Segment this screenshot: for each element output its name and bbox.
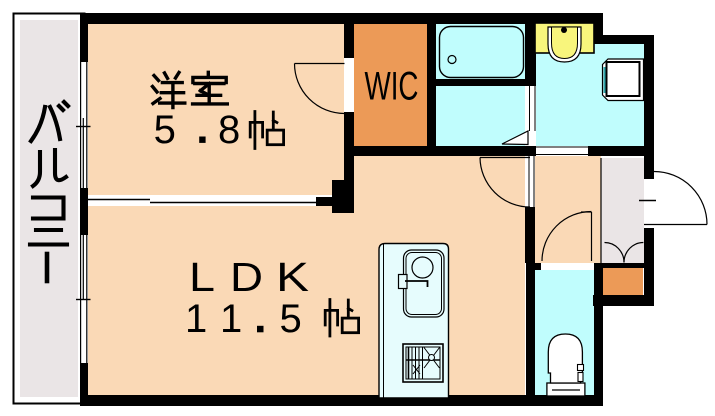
svg-text:WIC: WIC (365, 65, 419, 109)
svg-text:L: L (189, 254, 215, 300)
svg-text:1: 1 (185, 297, 207, 341)
svg-text:1: 1 (220, 297, 242, 341)
svg-text:D: D (230, 254, 263, 300)
svg-text:8: 8 (218, 108, 240, 152)
svg-text:5: 5 (154, 108, 176, 152)
svg-text:5: 5 (280, 297, 302, 341)
svg-text:K: K (276, 254, 309, 300)
